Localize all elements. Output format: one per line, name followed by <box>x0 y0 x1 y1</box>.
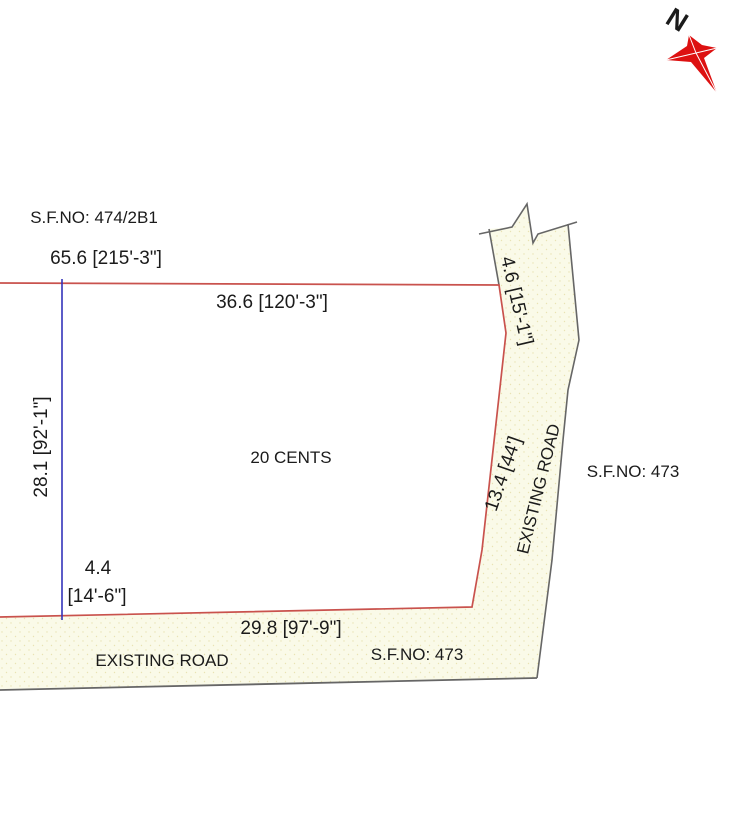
sf-no-top-label: S.F.NO: 474/2B1 <box>30 209 158 227</box>
north-arrow <box>666 35 717 93</box>
dimension-left: 28.1 [92'-1"] <box>32 396 52 497</box>
survey-sheet: N S.F.NO: 474/2B1 65.6 [215'-3"] 36.6 [1… <box>0 0 750 833</box>
sf-no-bottom-label: S.F.NO: 473 <box>371 646 464 664</box>
dimension-top-total: 65.6 [215'-3"] <box>50 249 162 269</box>
plot-area-label: 20 CENTS <box>250 449 331 467</box>
survey-drawing <box>0 0 750 833</box>
dimension-bottom-left-feet: [14'-6"] <box>68 587 127 607</box>
dimension-bottom-left-value: 4.4 <box>85 559 111 579</box>
road-bottom-label: EXISTING ROAD <box>95 652 228 670</box>
sf-no-right-label: S.F.NO: 473 <box>587 463 680 481</box>
dimension-top-plot: 36.6 [120'-3"] <box>216 293 328 313</box>
compass-star <box>666 35 717 93</box>
road-surface <box>0 204 579 689</box>
dimension-bottom: 29.8 [97'-9"] <box>240 619 341 639</box>
